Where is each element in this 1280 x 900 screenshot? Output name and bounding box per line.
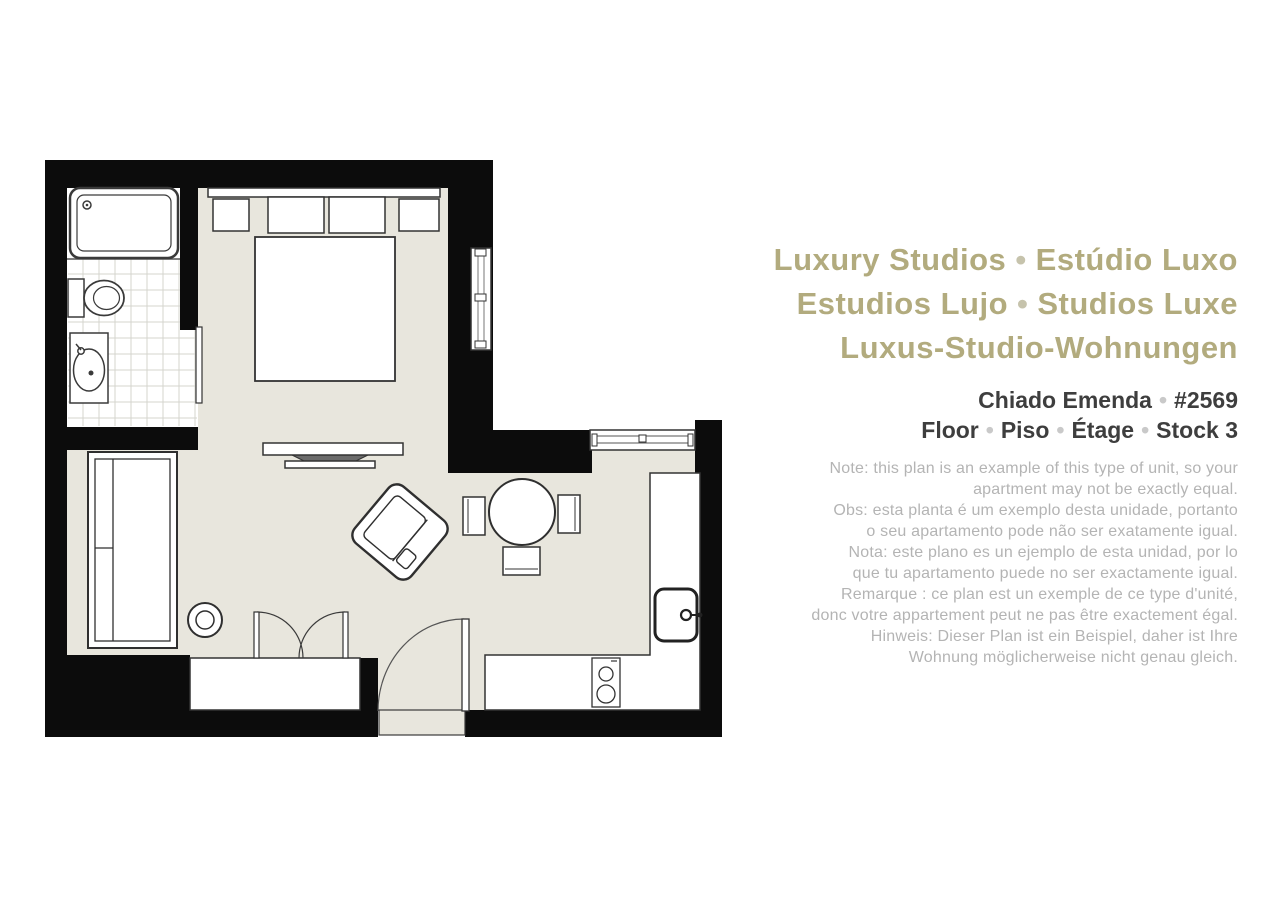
title-fr: Studios Luxe [1037, 286, 1238, 321]
unit-name-line: Chiado Emenda•#2569 [618, 385, 1238, 415]
page: Luxury Studios•Estúdio Luxo Estudios Luj… [0, 0, 1280, 900]
note-line: apartment may not be exactly equal. [618, 479, 1238, 500]
floor-en: Floor [921, 417, 979, 443]
title-es: Estudios Lujo [797, 286, 1008, 321]
bathtub [70, 188, 178, 258]
unit-info: Chiado Emenda•#2569 Floor•Piso•Étage•Sto… [618, 385, 1238, 445]
title-line-1: Luxury Studios•Estúdio Luxo [618, 238, 1238, 282]
bullet-separator: • [1056, 417, 1064, 443]
bullet-separator: • [1015, 242, 1026, 277]
side-table [188, 603, 222, 637]
sofa [88, 452, 177, 648]
floor-de: Stock 3 [1156, 417, 1238, 443]
note-line: o seu apartamento pode não ser exatament… [618, 521, 1238, 542]
floor-line: Floor•Piso•Étage•Stock 3 [618, 415, 1238, 445]
bullet-separator: • [1017, 286, 1028, 321]
bed [255, 237, 395, 381]
info-panel: Luxury Studios•Estúdio Luxo Estudios Luj… [618, 238, 1238, 668]
note-line: donc votre appartement peut ne pas être … [618, 605, 1238, 626]
note-line: Remarque : ce plan est un exemple de ce … [618, 584, 1238, 605]
stove [592, 658, 620, 707]
title-en: Luxury Studios [774, 242, 1007, 277]
headboard-pillows [208, 188, 440, 233]
entry-threshold [379, 710, 465, 735]
title-line-2: Estudios Lujo•Studios Luxe [618, 282, 1238, 326]
title: Luxury Studios•Estúdio Luxo Estudios Luj… [618, 238, 1238, 370]
title-line-3: Luxus-Studio-Wohnungen [618, 326, 1238, 370]
note-line: Nota: este plano es un ejemplo de esta u… [618, 542, 1238, 563]
bullet-separator: • [1159, 387, 1167, 413]
toilet [68, 279, 124, 317]
dining-table [489, 479, 555, 545]
note-line: Note: this plan is an example of this ty… [618, 458, 1238, 479]
wardrobe [190, 658, 360, 710]
bedroom-window [471, 248, 491, 350]
title-pt: Estúdio Luxo [1036, 242, 1238, 277]
bathroom-sink [70, 333, 108, 403]
note-line: que tu apartamento puede no ser exactame… [618, 563, 1238, 584]
note-line: Wohnung möglicherweise nicht genau gleic… [618, 647, 1238, 668]
bathroom-door [196, 327, 202, 403]
floor-es: Piso [1001, 417, 1050, 443]
note-line: Obs: esta planta é um exemplo desta unid… [618, 500, 1238, 521]
building-name: Chiado Emenda [978, 387, 1152, 413]
note-line: Hinweis: Dieser Plan ist ein Beispiel, d… [618, 626, 1238, 647]
floor-fr: Étage [1071, 417, 1134, 443]
bullet-separator: • [1141, 417, 1149, 443]
unit-number: #2569 [1174, 387, 1238, 413]
bullet-separator: • [986, 417, 994, 443]
disclaimer-notes: Note: this plan is an example of this ty… [618, 458, 1238, 668]
title-de: Luxus-Studio-Wohnungen [840, 330, 1238, 365]
